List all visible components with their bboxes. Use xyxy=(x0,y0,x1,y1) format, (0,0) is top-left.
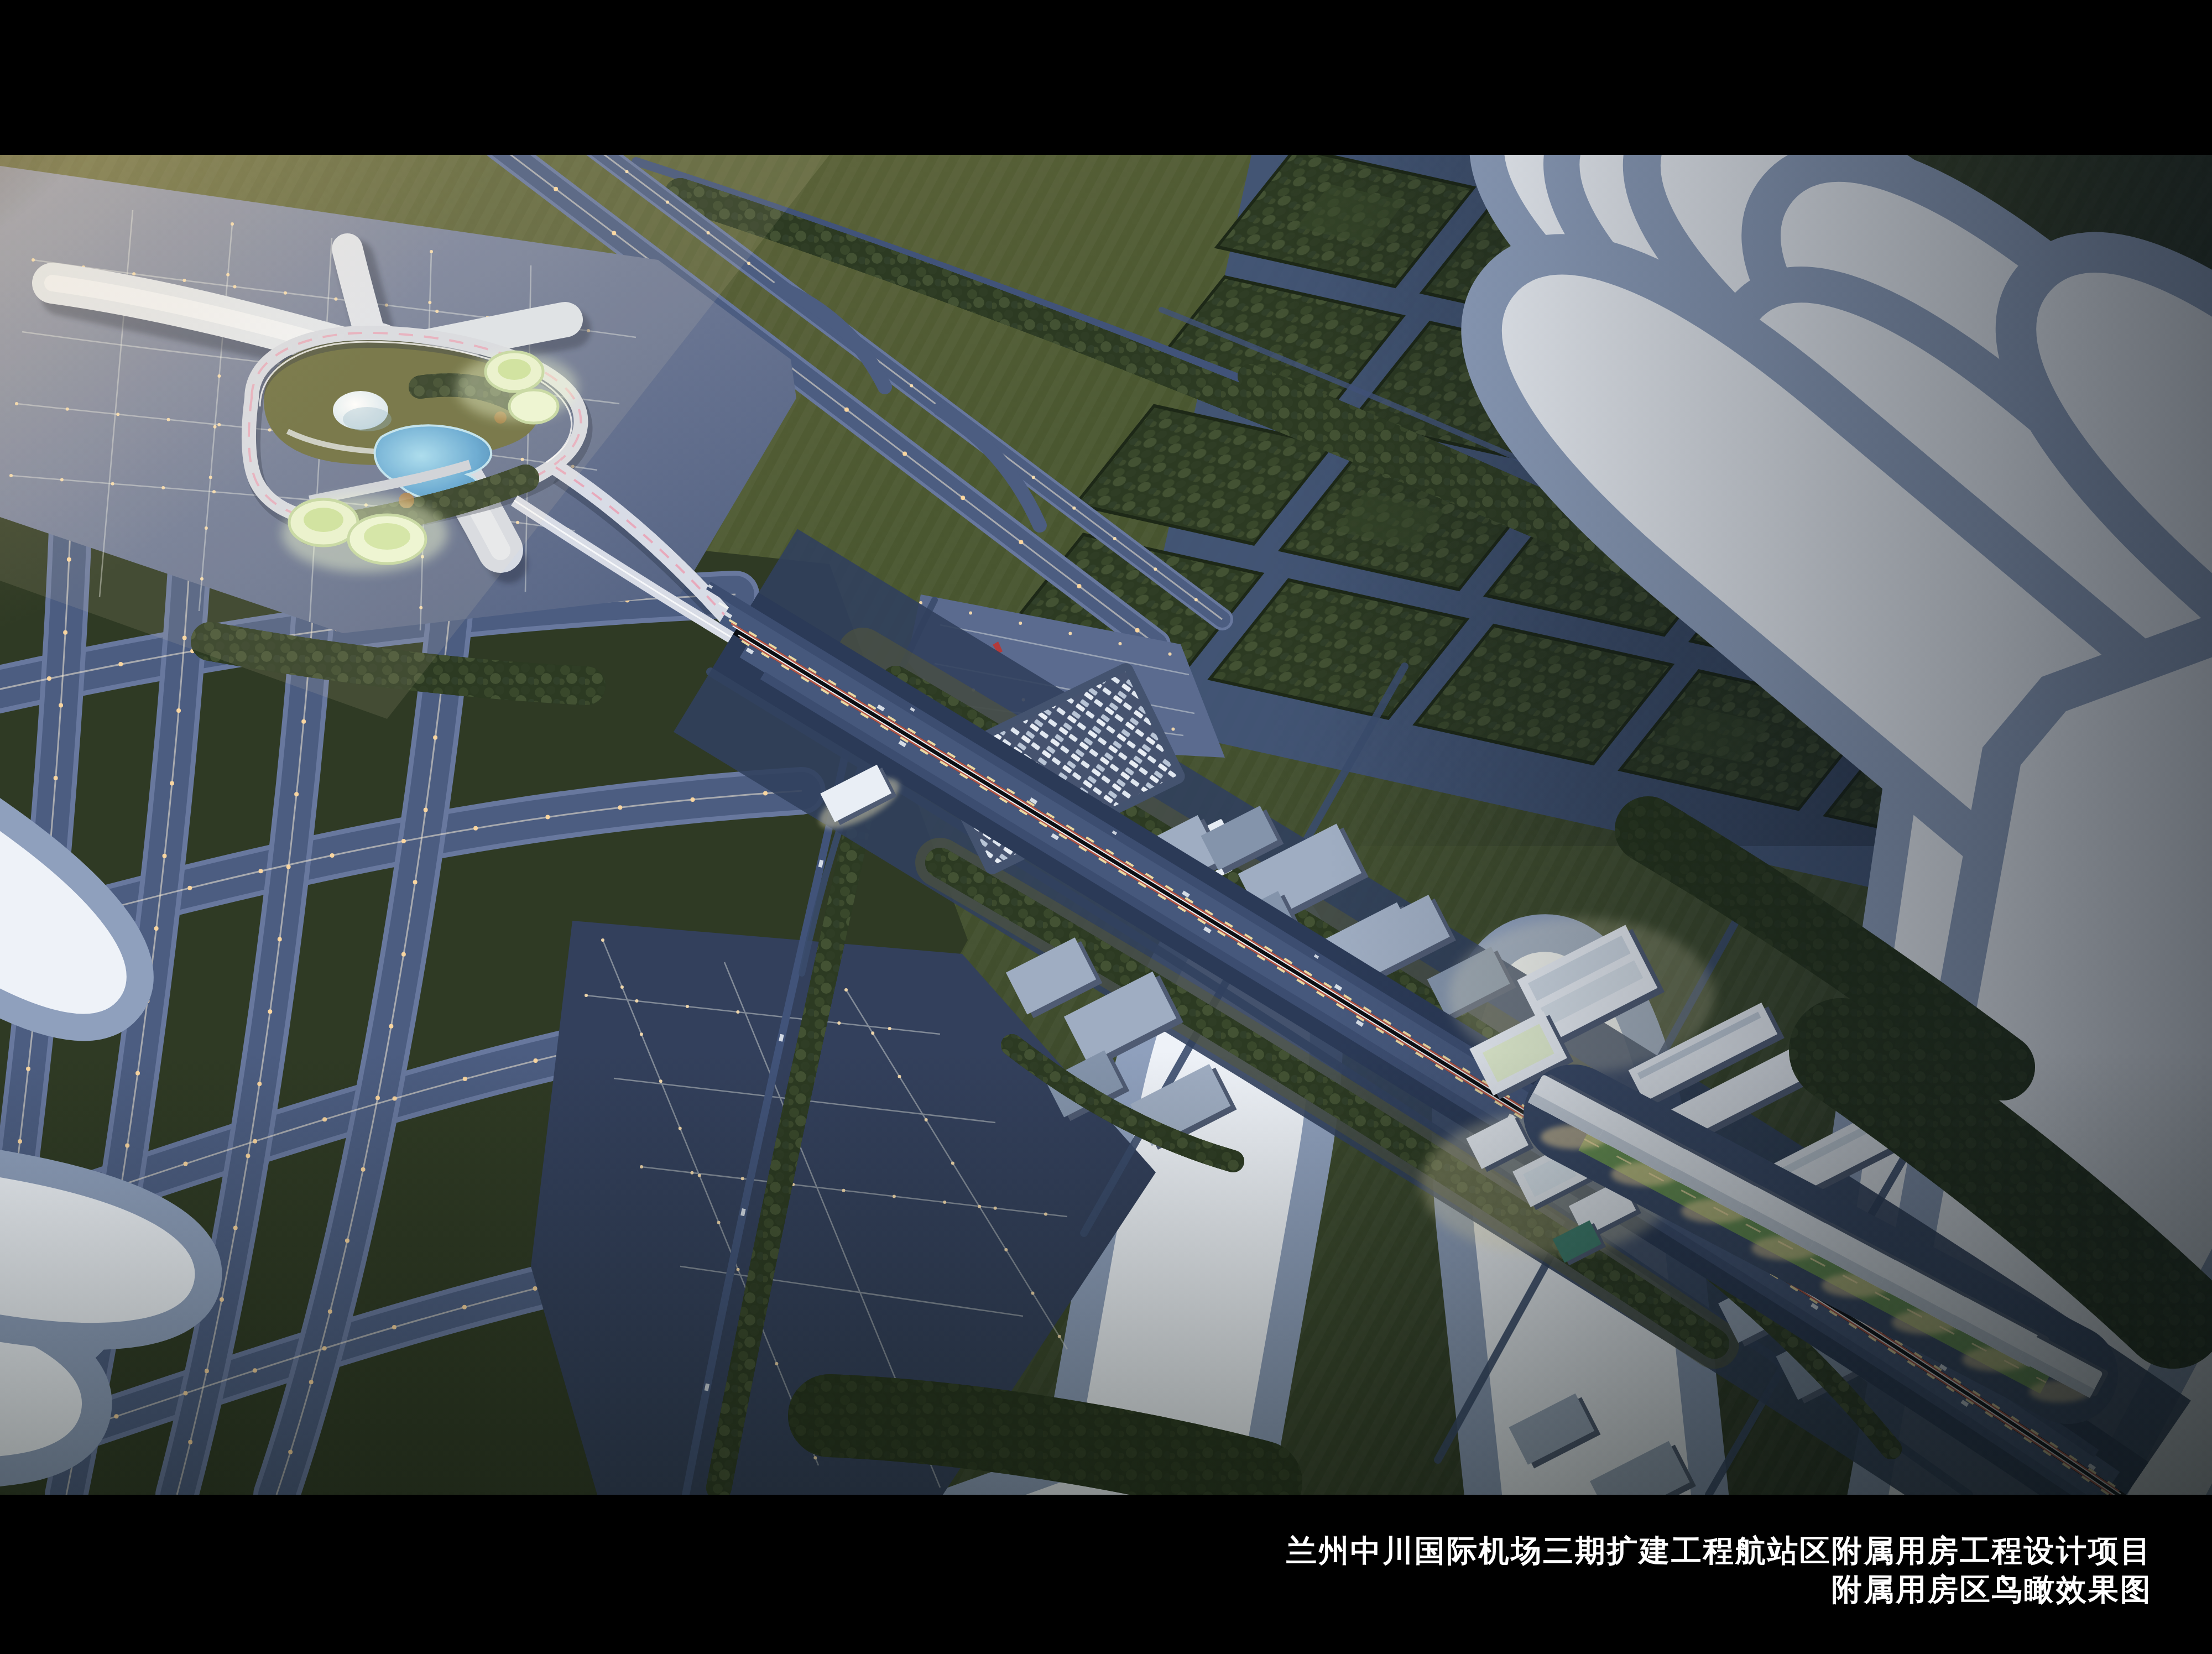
airport-aerial-scene: 兰州中川国际机场三期扩建工程航站区附属用房工程设计项目 附属用房区鸟瞰效果图 xyxy=(0,0,2212,1654)
caption-line-2: 附属用房区鸟瞰效果图 xyxy=(1832,1572,2152,1607)
caption-line-1: 兰州中川国际机场三期扩建工程航站区附属用房工程设计项目 xyxy=(1286,1533,2152,1568)
rendering-canvas: 兰州中川国际机场三期扩建工程航站区附属用房工程设计项目 附属用房区鸟瞰效果图 xyxy=(0,0,2212,1654)
top-letterbox-bar xyxy=(0,0,2212,155)
